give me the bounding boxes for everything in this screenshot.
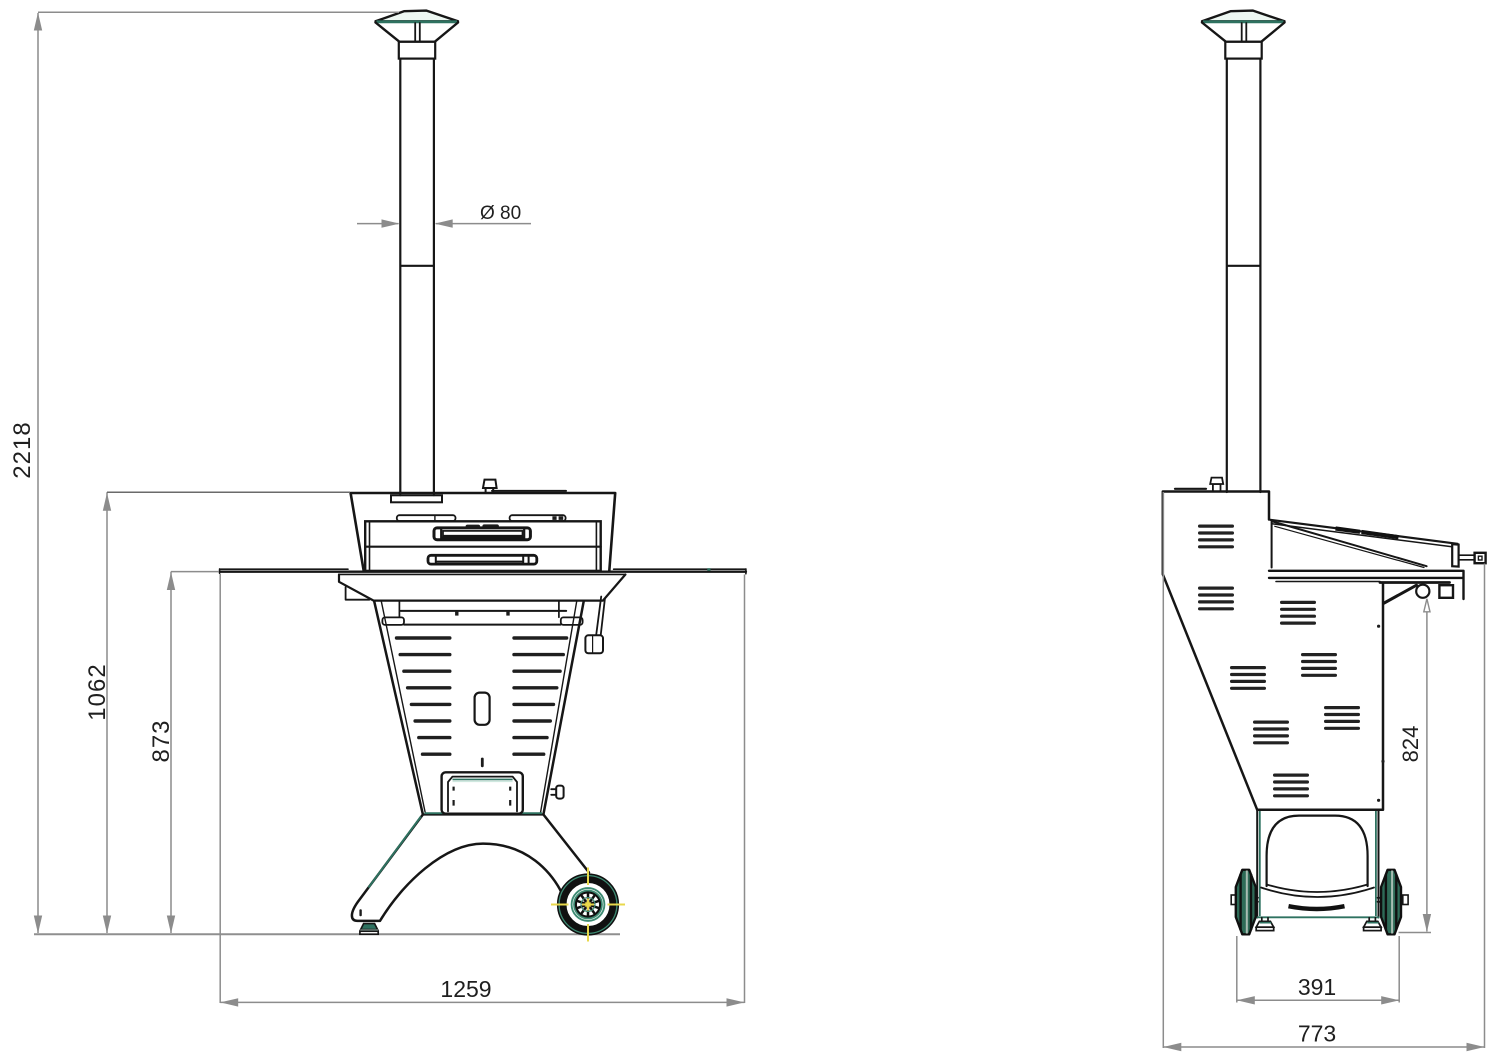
svg-text:391: 391: [1298, 974, 1336, 1000]
svg-text:873: 873: [148, 719, 175, 762]
svg-text:1259: 1259: [440, 976, 491, 1002]
svg-text:773: 773: [1298, 1021, 1336, 1047]
svg-text:2218: 2218: [9, 421, 36, 478]
svg-text:1062: 1062: [84, 663, 111, 720]
svg-text:824: 824: [1398, 726, 1423, 763]
svg-text:Ø 80: Ø 80: [480, 203, 521, 224]
